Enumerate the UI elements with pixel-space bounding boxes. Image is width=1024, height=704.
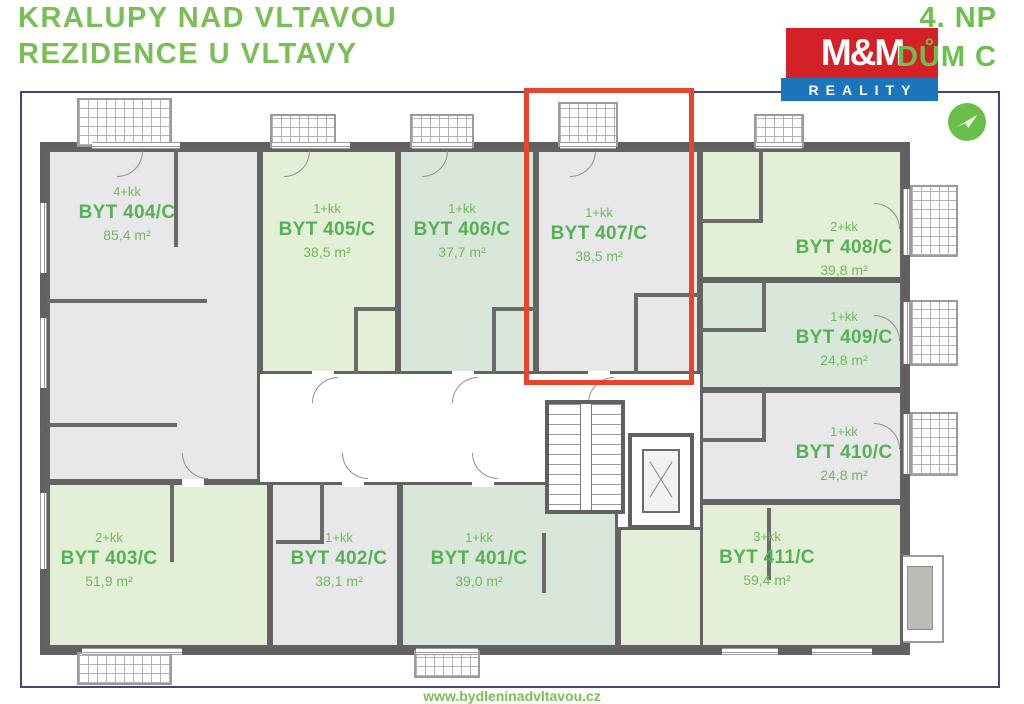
unit-label-401: 1+kk BYT 401/C 39,0 m² — [431, 530, 528, 590]
paper-plane-icon — [948, 103, 986, 141]
window-mark — [412, 142, 472, 149]
window-mark — [92, 142, 180, 149]
unit-region-406[interactable] — [398, 149, 536, 374]
unit-area: 39,8 m² — [796, 261, 893, 279]
window-mark — [756, 142, 802, 149]
interior-wall — [700, 328, 766, 332]
logo-bottom-text: REALITY — [781, 78, 938, 101]
page-title-line2: REZIDENCE U VLTAVY — [18, 38, 358, 71]
unit-layout: 1+kk — [431, 530, 528, 547]
unit-name: BYT 404/C — [79, 201, 176, 226]
window-mark — [272, 142, 350, 149]
terrace-bottom-right — [898, 555, 944, 643]
unit-label-404: 4+kk BYT 404/C 85,4 m² — [79, 184, 176, 244]
unit-layout: 3+kk — [719, 529, 815, 546]
unit-area: 59,4 m² — [719, 571, 815, 589]
unit-area: 38,1 m² — [291, 572, 388, 590]
staircase — [545, 400, 625, 514]
unit-name: BYT 406/C — [414, 218, 511, 243]
unit-name: BYT 411/C — [719, 546, 815, 571]
interior-wall — [542, 533, 546, 593]
interior-wall — [354, 307, 358, 374]
interior-wall — [700, 219, 763, 223]
unit-label-405: 1+kk BYT 405/C 38,5 m² — [279, 201, 376, 261]
unit-layout: 4+kk — [79, 184, 176, 201]
unit-area: 37,7 m² — [414, 243, 511, 261]
unit-layout: 1+kk — [796, 424, 893, 441]
window-mark — [903, 414, 910, 474]
balcony-right-410 — [910, 412, 958, 476]
unit-layout: 2+kk — [796, 219, 893, 236]
unit-label-410: 1+kk BYT 410/C 24,8 m² — [796, 424, 893, 484]
interior-wall — [47, 299, 207, 303]
unit-name: BYT 401/C — [431, 547, 528, 572]
balcony-bottom-403 — [77, 652, 172, 685]
unit-area: 24,8 m² — [796, 466, 893, 484]
window-mark — [812, 648, 872, 655]
interior-wall — [762, 390, 766, 442]
unit-layout: 1+kk — [414, 201, 511, 218]
unit-name: BYT 403/C — [61, 547, 158, 572]
unit-label-406: 1+kk BYT 406/C 37,7 m² — [414, 201, 511, 261]
unit-name: BYT 410/C — [796, 441, 893, 466]
balcony-right-409 — [910, 300, 958, 366]
window-mark — [40, 318, 47, 388]
balcony-right-408 — [910, 185, 958, 257]
unit-area: 24,8 m² — [796, 351, 893, 369]
unit-layout: 1+kk — [279, 201, 376, 218]
highlight-box-407 — [524, 88, 694, 385]
interior-wall — [762, 280, 766, 332]
window-mark — [722, 648, 778, 655]
unit-label-411: 3+kk BYT 411/C 59,4 m² — [719, 529, 815, 589]
window-mark — [903, 189, 910, 255]
interior-wall — [492, 307, 496, 374]
door-gap — [182, 479, 204, 487]
door-gap — [342, 479, 364, 487]
unit-label-403: 2+kk BYT 403/C 51,9 m² — [61, 530, 158, 590]
unit-label-409: 1+kk BYT 409/C 24,8 m² — [796, 309, 893, 369]
unit-name: BYT 402/C — [291, 547, 388, 572]
page-title-line1: KRALUPY NAD VLTAVOU — [18, 2, 397, 35]
unit-region-411-ext[interactable] — [618, 527, 703, 648]
floor-number: 4. NP — [919, 2, 997, 35]
window-mark — [82, 648, 182, 655]
unit-name: BYT 409/C — [796, 326, 893, 351]
elevator-car — [642, 449, 680, 513]
balcony-top-404 — [77, 98, 172, 147]
unit-region-405[interactable] — [260, 149, 398, 374]
floorplan-page: KRALUPY NAD VLTAVOU REZIDENCE U VLTAVY 4… — [0, 0, 1024, 697]
building-name: DŮM C — [897, 41, 997, 74]
unit-area: 38,5 m² — [279, 243, 376, 261]
unit-area: 85,4 m² — [79, 226, 176, 244]
unit-name: BYT 405/C — [279, 218, 376, 243]
interior-wall — [354, 307, 398, 311]
interior-wall — [47, 423, 177, 427]
unit-name: BYT 408/C — [796, 236, 893, 261]
unit-label-408: 2+kk BYT 408/C 39,8 m² — [796, 219, 893, 279]
window-mark — [40, 493, 47, 569]
floorplan-canvas: 4+kk BYT 404/C 85,4 m² 1+kk BYT 405/C 38… — [20, 91, 1000, 688]
window-mark — [416, 648, 478, 655]
unit-layout: 1+kk — [796, 309, 893, 326]
window-mark — [903, 302, 910, 364]
interior-wall — [700, 438, 766, 442]
interior-wall — [170, 482, 174, 562]
window-mark — [40, 203, 47, 273]
unit-label-402: 1+kk BYT 402/C 38,1 m² — [291, 530, 388, 590]
unit-layout: 2+kk — [61, 530, 158, 547]
door-gap — [472, 479, 494, 487]
unit-area: 51,9 m² — [61, 572, 158, 590]
elevator-shaft — [628, 433, 694, 529]
footer-url-link[interactable]: www.bydleninadvltavou.cz — [0, 688, 1024, 704]
interior-wall — [759, 149, 763, 223]
unit-layout: 1+kk — [291, 530, 388, 547]
unit-area: 39,0 m² — [431, 572, 528, 590]
